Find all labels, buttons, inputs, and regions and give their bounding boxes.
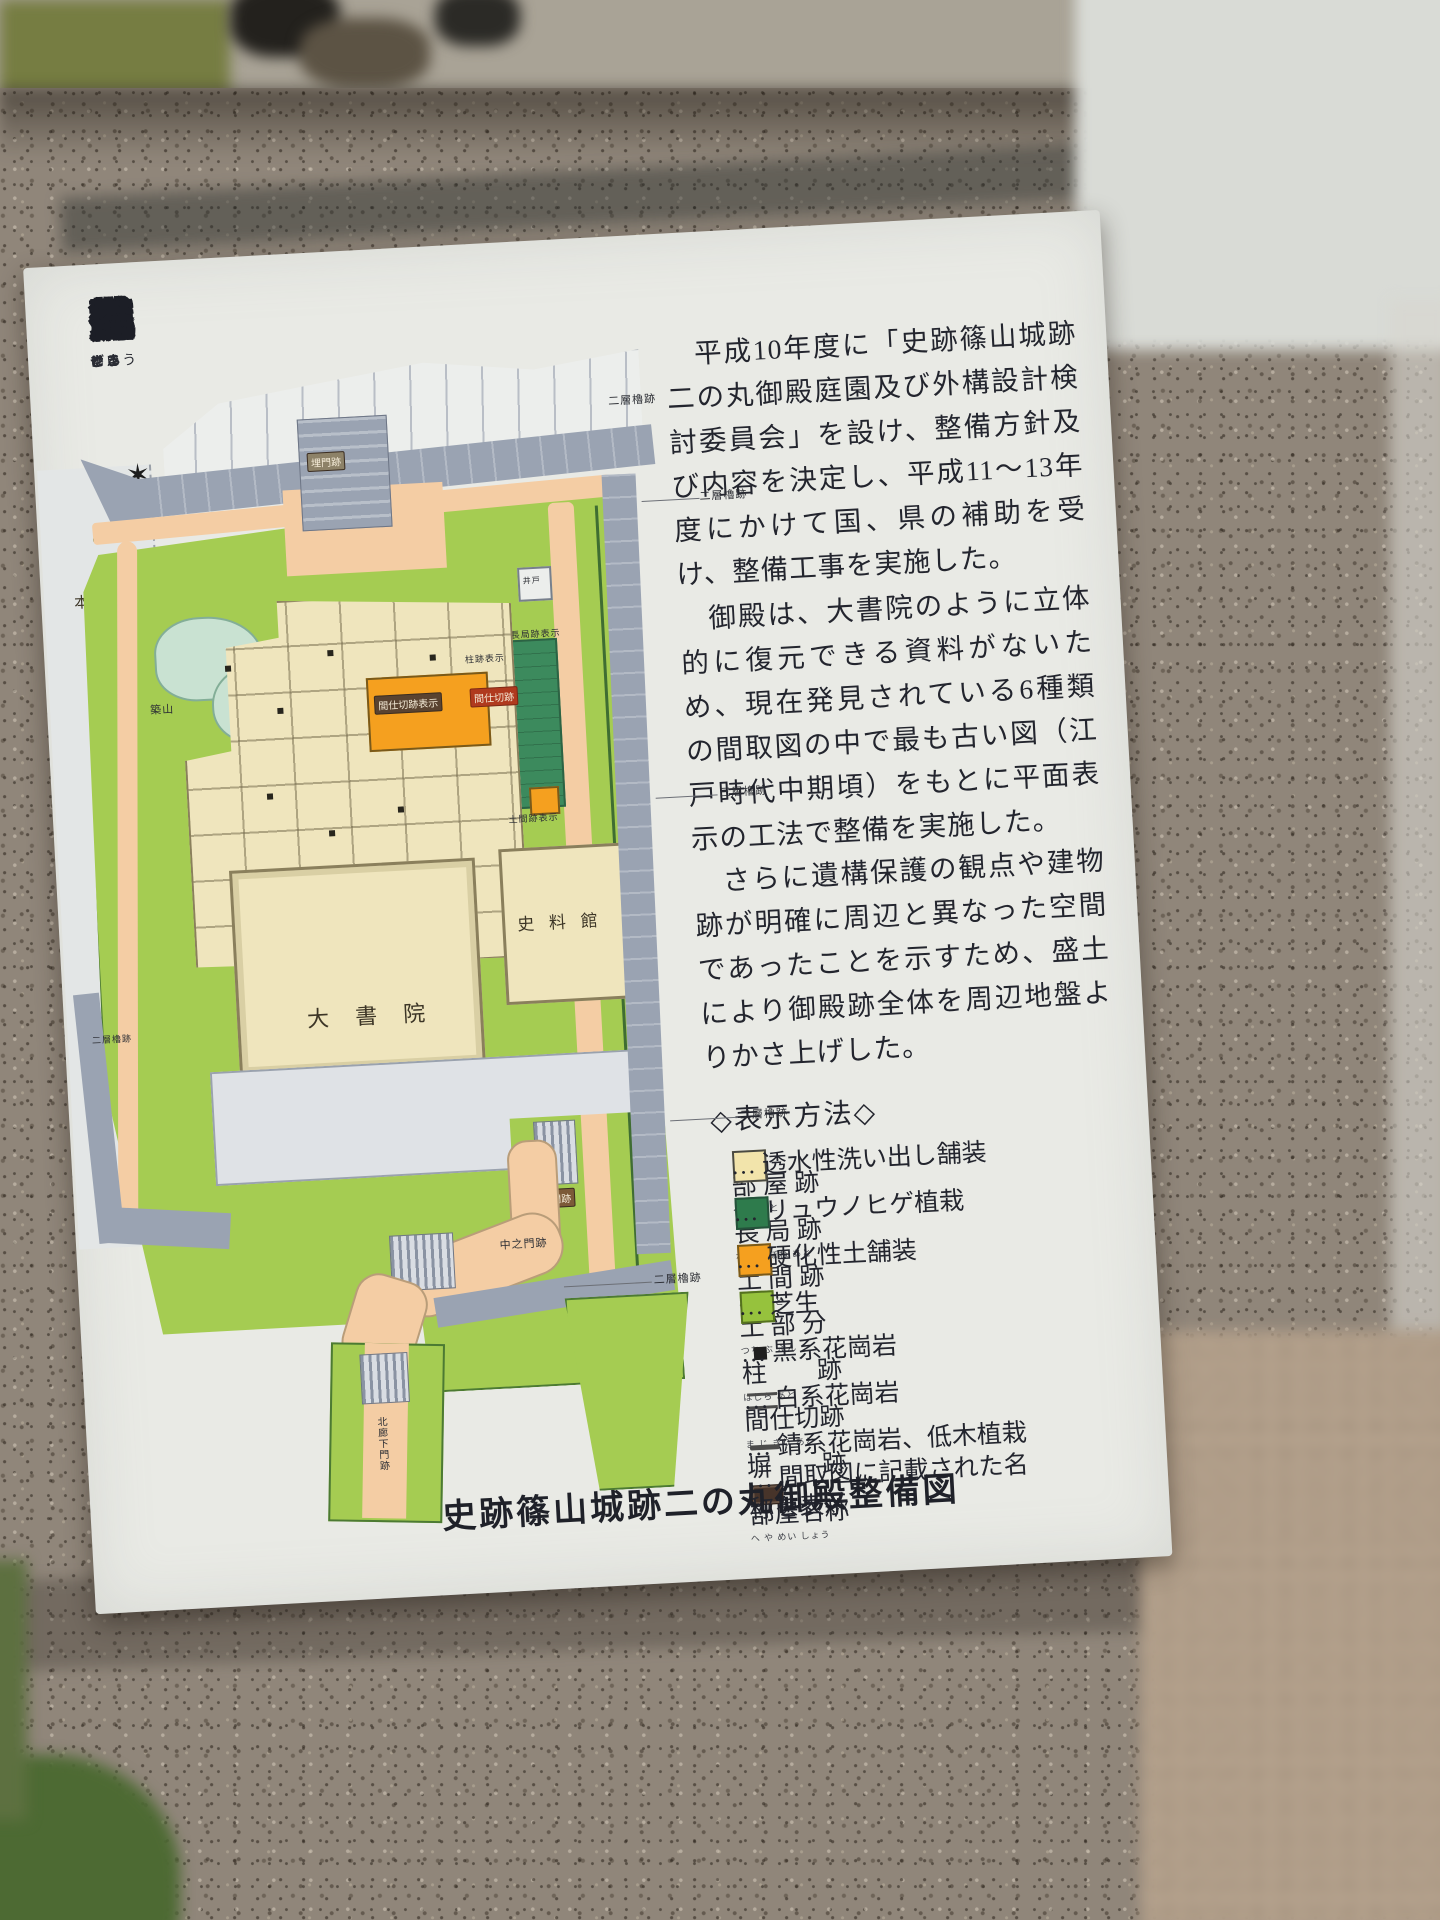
yagura-label-5: 二層櫓跡: [653, 1269, 702, 1288]
southeast-lawn-wedge: [565, 1292, 699, 1492]
yagura-label-3: 三層櫓跡: [719, 782, 768, 801]
leader-line-3: [656, 794, 718, 798]
doma-label: 土間跡表示: [508, 810, 559, 826]
nakanomon-label: 中之門跡: [499, 1234, 548, 1253]
bright-background-top-right: [1075, 0, 1440, 350]
tsukiyama-label: 築山: [150, 701, 175, 718]
yagura-label-4: 二層櫓跡: [739, 1104, 788, 1123]
well-label: 井戸: [522, 575, 541, 587]
shiryokan-label: 史 料 館: [517, 906, 604, 936]
pillar-dot: [329, 830, 335, 836]
grass-top-left: [0, 0, 230, 95]
pillar-dot: [267, 793, 273, 799]
leader-line-4: [670, 1117, 738, 1122]
pillar-dot: [225, 666, 231, 672]
kitaroukamon-label: 北廊下門跡: [373, 1416, 390, 1472]
majikiri-chip-red: 間仕切跡: [469, 686, 518, 708]
sign-panel: 史し跡せき篠ささ山やま城じょう跡せき二にの丸まる御ご殿てん整せい備び 平成10年…: [23, 210, 1172, 1614]
pillar-dot: [327, 650, 333, 656]
pillar-dot: [430, 654, 436, 660]
leader-line-2: [642, 498, 700, 502]
grass-left-edge: [0, 1560, 27, 1820]
hashira-label: 柱跡表示: [465, 651, 506, 666]
pillar-dot: [277, 708, 283, 714]
yagura-label-6: 二層櫓跡: [92, 1031, 133, 1046]
uzumimon-label: 埋門跡: [307, 451, 346, 472]
bright-edge-right: [1390, 300, 1440, 1350]
yagura-label-1: 二層櫓跡: [608, 390, 657, 409]
site-map: 本 丸 ✶ 築山 埋門跡: [44, 336, 836, 1534]
stone-bottom-right: [1140, 1330, 1440, 1920]
nagatsubone-label: 長局跡表示: [510, 626, 561, 642]
daishoin-building: [229, 858, 486, 1077]
pedestrian-blob-3: [435, 0, 520, 46]
majikiri-chip-dark: 間仕切跡表示: [374, 692, 443, 715]
yagura-label-2: 二層櫓跡: [699, 485, 748, 504]
kitaroukamon-stairs: [359, 1352, 410, 1405]
path-left-winding: [117, 541, 138, 1231]
pillar-dot: [398, 806, 404, 812]
pedestrian-blob-2: [300, 18, 430, 88]
photo-of-information-sign: 史し跡せき篠ささ山やま城じょう跡せき二にの丸まる御ご殿てん整せい備び 平成10年…: [0, 0, 1440, 1920]
uzumimon-gate: [297, 415, 393, 532]
